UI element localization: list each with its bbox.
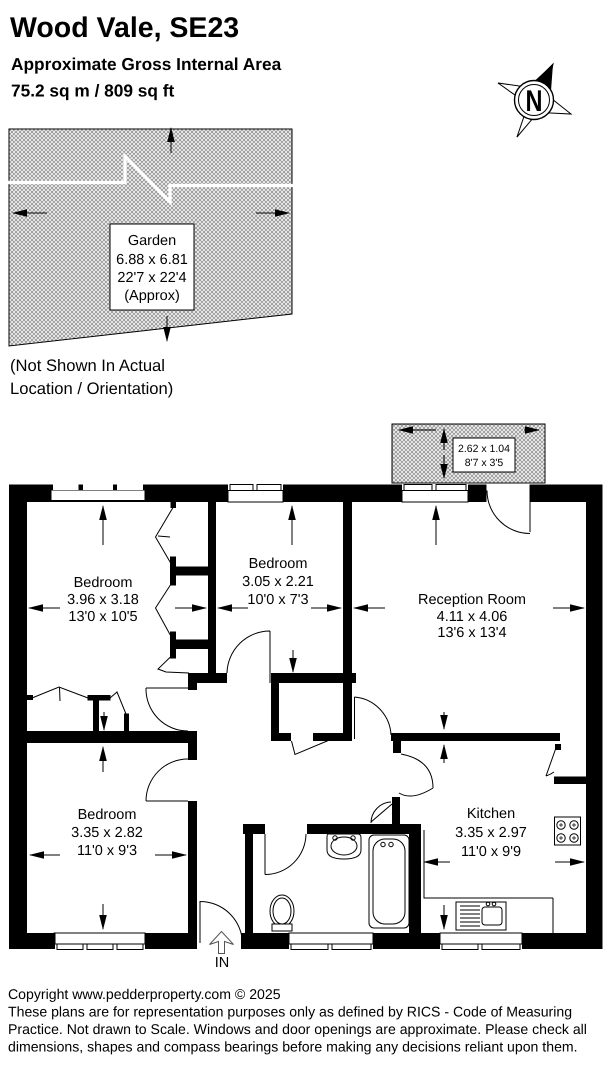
svg-text:Approximate Gross Internal Are: Approximate Gross Internal Area — [11, 54, 282, 74]
svg-text:(Not Shown In Actual: (Not Shown In Actual — [10, 356, 165, 375]
svg-text:3.35 x 2.82: 3.35 x 2.82 — [71, 825, 143, 841]
svg-text:6.88 x 6.81: 6.88 x 6.81 — [116, 252, 188, 268]
svg-text:22'7 x 22'4: 22'7 x 22'4 — [117, 270, 186, 286]
svg-text:3.05 x 2.21: 3.05 x 2.21 — [242, 574, 314, 590]
svg-text:Kitchen: Kitchen — [467, 806, 515, 822]
svg-text:4.11 x 4.06: 4.11 x 4.06 — [437, 609, 508, 625]
svg-text:Copyright www.pedderproperty.c: Copyright www.pedderproperty.com © 2025 — [8, 986, 281, 1002]
svg-text:10'0 x 7'3: 10'0 x 7'3 — [247, 592, 308, 608]
svg-text:11'0 x 9'3: 11'0 x 9'3 — [77, 843, 137, 859]
svg-text:2.62 x 1.04: 2.62 x 1.04 — [458, 443, 510, 455]
svg-text:3.35 x 2.97: 3.35 x 2.97 — [455, 825, 527, 841]
svg-text:Garden: Garden — [128, 233, 176, 249]
svg-text:Bedroom: Bedroom — [78, 807, 137, 823]
svg-text:N: N — [526, 85, 543, 118]
svg-text:75.2 sq m / 809 sq ft: 75.2 sq m / 809 sq ft — [11, 81, 175, 101]
svg-text:13'6 x 13'4: 13'6 x 13'4 — [437, 625, 506, 641]
svg-text:13'0 x 10'5: 13'0 x 10'5 — [68, 609, 137, 625]
svg-text:Wood Vale, SE23: Wood Vale, SE23 — [10, 12, 239, 44]
svg-text:IN: IN — [215, 955, 230, 971]
svg-text:Location / Orientation): Location / Orientation) — [10, 379, 173, 398]
svg-text:Bedroom: Bedroom — [74, 575, 133, 591]
svg-text:11'0 x 9'9: 11'0 x 9'9 — [461, 844, 521, 860]
svg-text:(Approx): (Approx) — [124, 288, 180, 304]
svg-text:Bedroom: Bedroom — [249, 556, 308, 572]
svg-text:Practice. Not drawn to Scale.: Practice. Not drawn to Scale. Windows an… — [8, 1021, 587, 1037]
svg-text:3.96 x 3.18: 3.96 x 3.18 — [67, 592, 139, 608]
svg-text:These plans are for representa: These plans are for representation purpo… — [8, 1004, 572, 1020]
svg-text:8'7 x 3'5: 8'7 x 3'5 — [465, 457, 504, 469]
svg-text:Reception Room: Reception Room — [418, 592, 526, 608]
svg-text:dimensions, shapes and compass: dimensions, shapes and compass bearings … — [8, 1039, 578, 1055]
